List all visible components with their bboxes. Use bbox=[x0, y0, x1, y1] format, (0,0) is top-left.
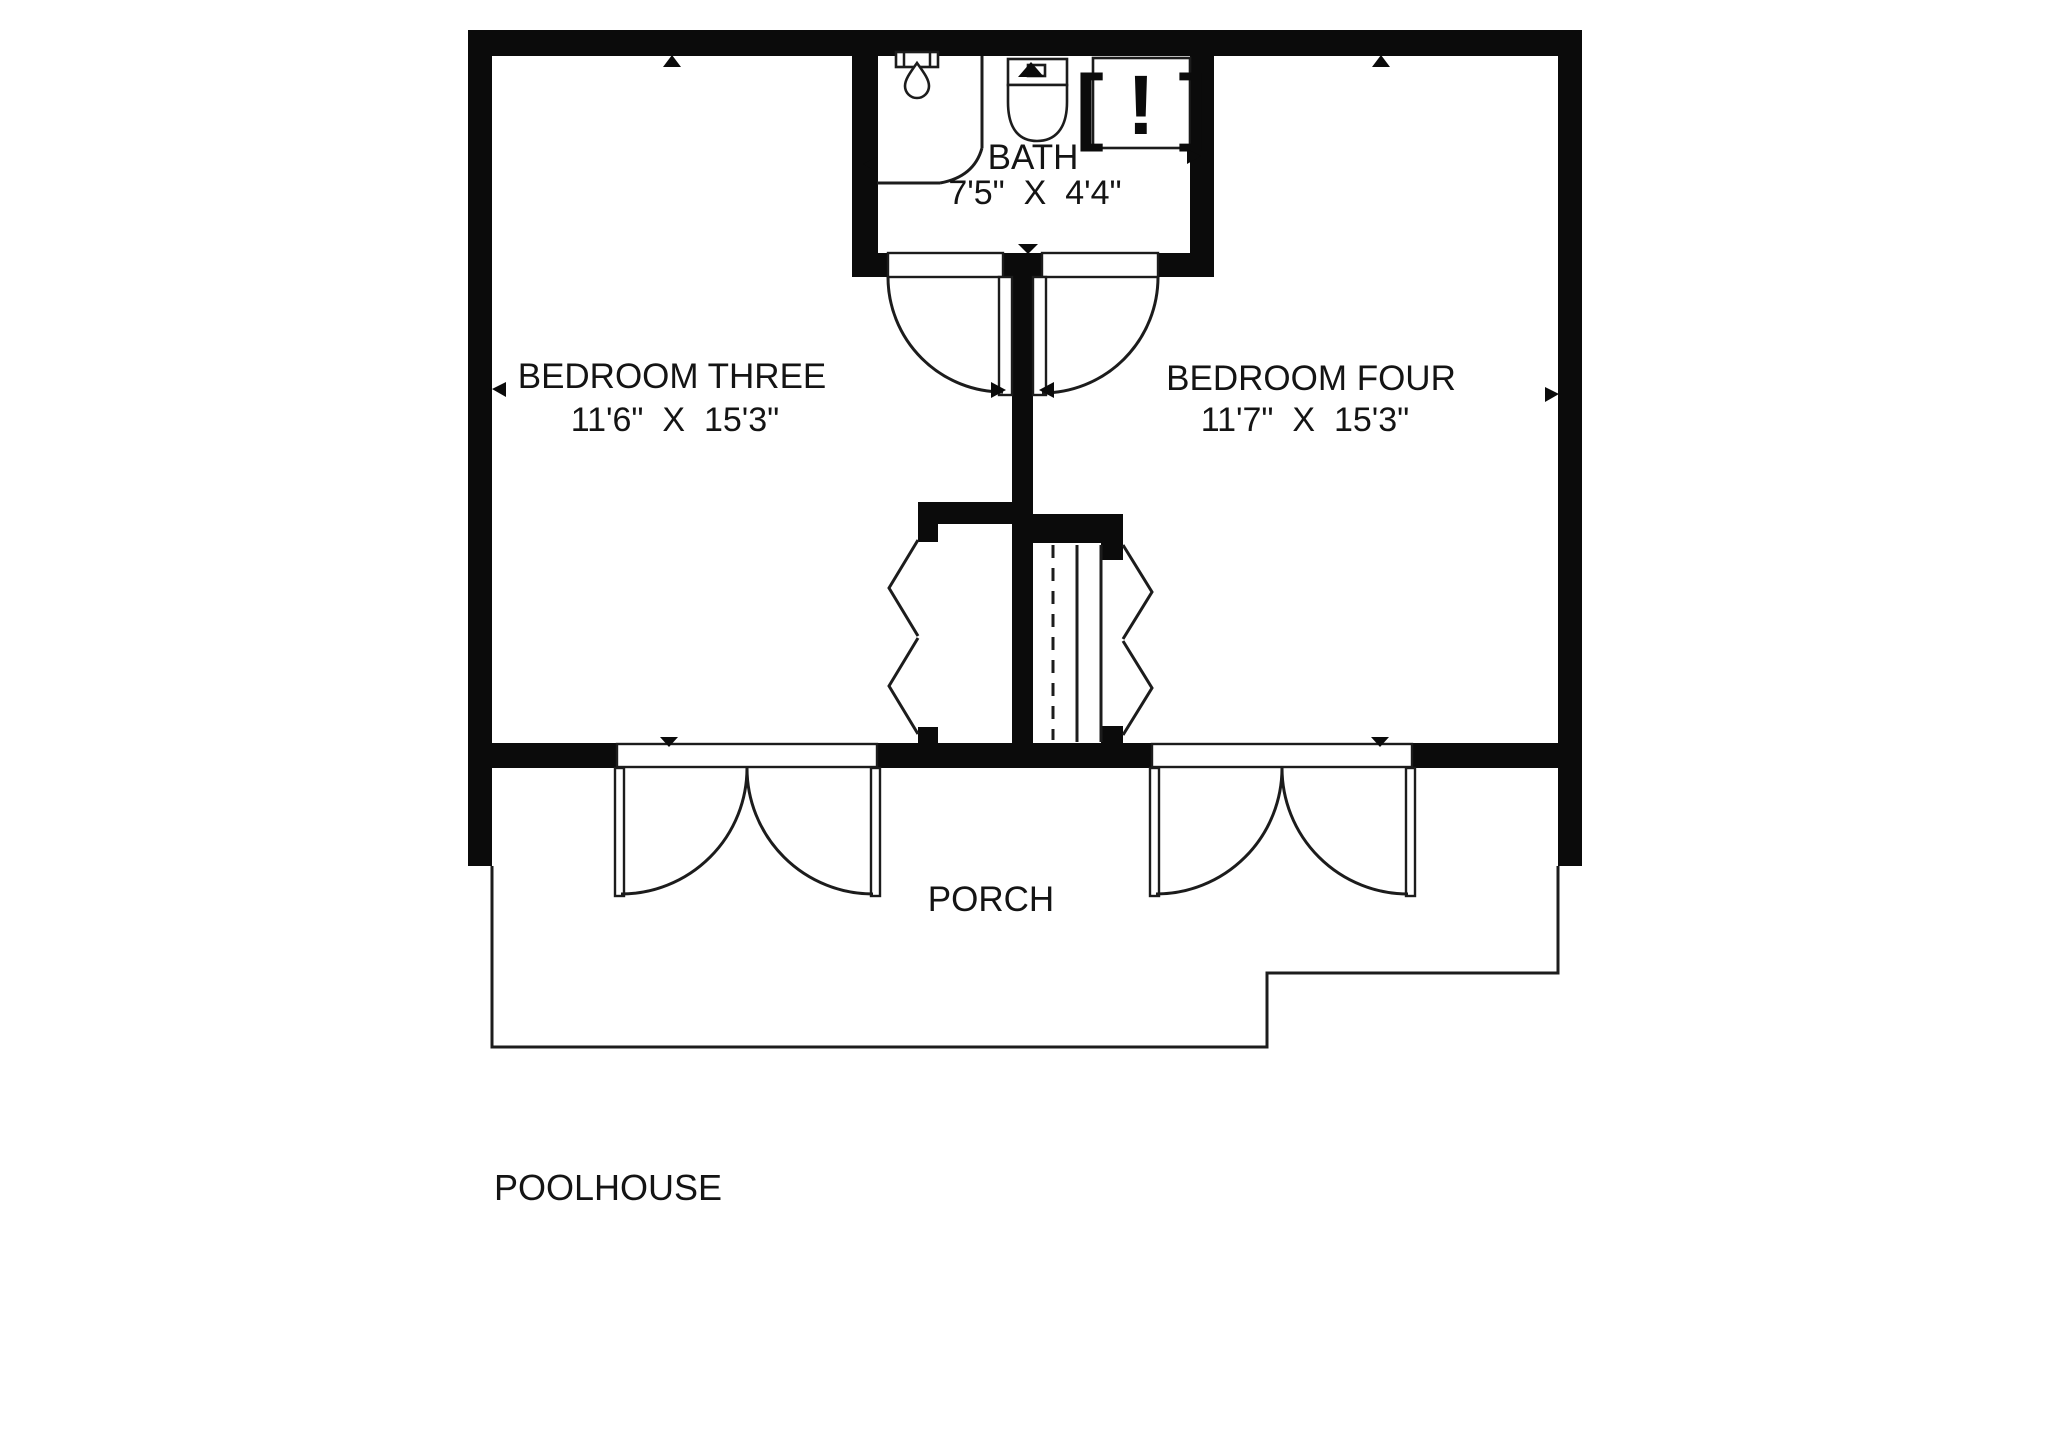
floor-plan-page: [ ! ] BEDROOM THREE 11'6" X 15'3" BEDROO… bbox=[0, 0, 2048, 1447]
wall-bottom-segment bbox=[468, 743, 617, 768]
bath-wall-bottom-segment bbox=[1158, 253, 1214, 277]
wall-bottom-segment bbox=[877, 743, 1152, 768]
wall-right bbox=[1558, 30, 1582, 866]
bedroom-four-label: BEDROOM FOUR bbox=[1166, 359, 1456, 398]
porch-label: PORCH bbox=[928, 880, 1054, 919]
central-partition-walls bbox=[918, 277, 1123, 745]
shower-icon bbox=[877, 52, 982, 183]
door-leaf bbox=[615, 768, 624, 896]
bath-door-opening-bedroom-four bbox=[1042, 253, 1158, 277]
door-swing-arc bbox=[888, 277, 1003, 392]
bath-wall-bottom-segment bbox=[1001, 253, 1042, 277]
door-swing-arc bbox=[1156, 768, 1282, 894]
door-swing-arc bbox=[1042, 277, 1158, 393]
porch-door-opening-left bbox=[617, 744, 877, 767]
door-swing-arc bbox=[1282, 768, 1408, 894]
floor-plan-canvas: [ ! ] BEDROOM THREE 11'6" X 15'3" BEDROO… bbox=[0, 0, 2048, 1447]
french-doors-left bbox=[615, 768, 880, 896]
wall-left bbox=[468, 30, 492, 866]
marker-right-icon bbox=[1545, 387, 1559, 402]
door-leaf bbox=[1406, 768, 1415, 896]
bath-label: BATH bbox=[988, 138, 1079, 177]
closet-left-bottom-jamb bbox=[918, 727, 938, 745]
bath-dimensions: 7'5" X 4'4" bbox=[948, 174, 1121, 212]
fixture-symbol: [ ! ] bbox=[1076, 58, 1207, 152]
bifold-panel bbox=[889, 638, 918, 734]
door-leaf bbox=[1033, 277, 1046, 395]
marker-down-icon bbox=[1018, 244, 1038, 254]
closet-right-top-jamb bbox=[1101, 514, 1123, 560]
french-doors-right bbox=[1150, 768, 1415, 896]
plan-title: POOLHOUSE bbox=[494, 1167, 722, 1208]
bedroom-three-label: BEDROOM THREE bbox=[518, 357, 827, 396]
marker-up-icon bbox=[663, 55, 681, 67]
door-swing-arc bbox=[747, 768, 873, 894]
marker-left-icon bbox=[492, 382, 506, 397]
closet-left-top-jamb bbox=[918, 502, 938, 542]
wall-between-bedrooms bbox=[1012, 277, 1033, 745]
wall-bottom-segment bbox=[1412, 743, 1582, 768]
door-leaf bbox=[1150, 768, 1159, 896]
bath-door-bedroom-four bbox=[1033, 277, 1158, 398]
door-leaf bbox=[999, 277, 1012, 395]
bifold-panel bbox=[889, 540, 918, 636]
closet-right-bottom-jamb bbox=[1101, 726, 1123, 745]
marker-up-icon bbox=[1372, 55, 1390, 67]
bifold-panel bbox=[1123, 641, 1152, 735]
bifold-panel bbox=[1123, 545, 1152, 639]
bedroom-three-dimensions: 11'6" X 15'3" bbox=[571, 401, 780, 439]
toilet-bowl bbox=[1008, 85, 1067, 141]
bath-door-bedroom-three bbox=[888, 277, 1012, 398]
exclamation-fixture-icon: [ ! ] bbox=[1076, 58, 1207, 152]
door-swing-arc bbox=[621, 768, 747, 894]
door-leaf bbox=[871, 768, 880, 896]
porch-door-opening-right bbox=[1152, 744, 1412, 767]
bifold-door-left-closet bbox=[889, 540, 918, 734]
bath-wall-bottom-segment bbox=[852, 253, 890, 277]
bedroom-four-dimensions: 11'7" X 15'3" bbox=[1201, 401, 1410, 439]
bifold-door-right-closet bbox=[1053, 545, 1152, 742]
wall-top bbox=[468, 30, 1582, 56]
bath-door-opening-bedroom-three bbox=[888, 253, 1003, 277]
